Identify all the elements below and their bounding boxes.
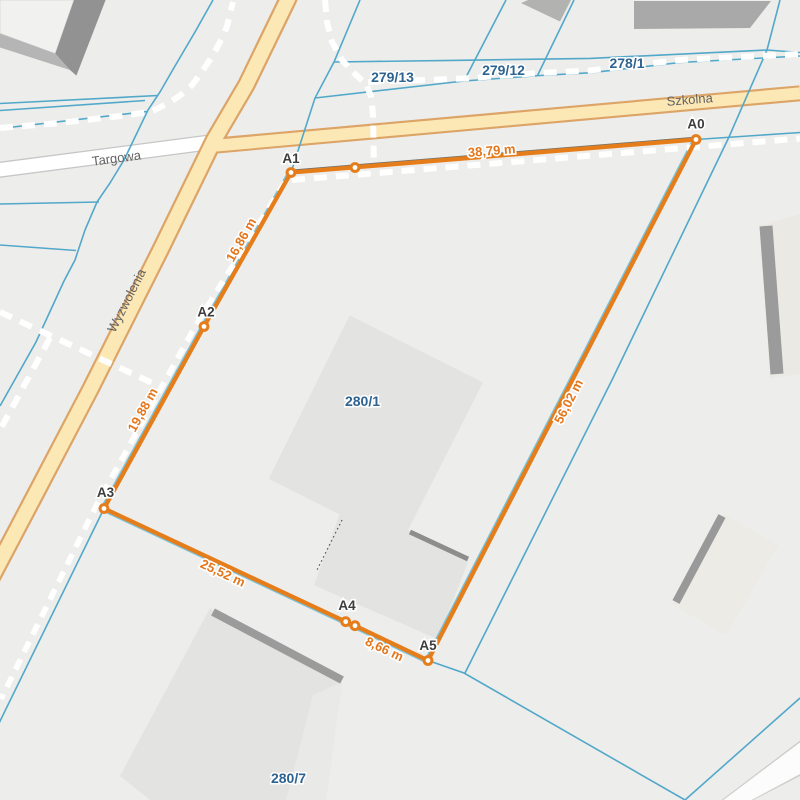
svg-text:A5: A5 <box>419 638 437 653</box>
svg-text:279/12: 279/12 <box>482 62 525 78</box>
svg-text:A1: A1 <box>282 151 300 166</box>
svg-text:A0: A0 <box>687 117 704 132</box>
svg-text:279/13: 279/13 <box>371 69 414 85</box>
svg-text:280/1: 280/1 <box>345 393 380 409</box>
svg-text:A2: A2 <box>197 305 214 320</box>
svg-text:A3: A3 <box>97 485 115 500</box>
svg-text:278/1: 278/1 <box>609 55 644 71</box>
svg-text:280/7: 280/7 <box>271 770 306 786</box>
svg-text:A4: A4 <box>338 598 356 613</box>
